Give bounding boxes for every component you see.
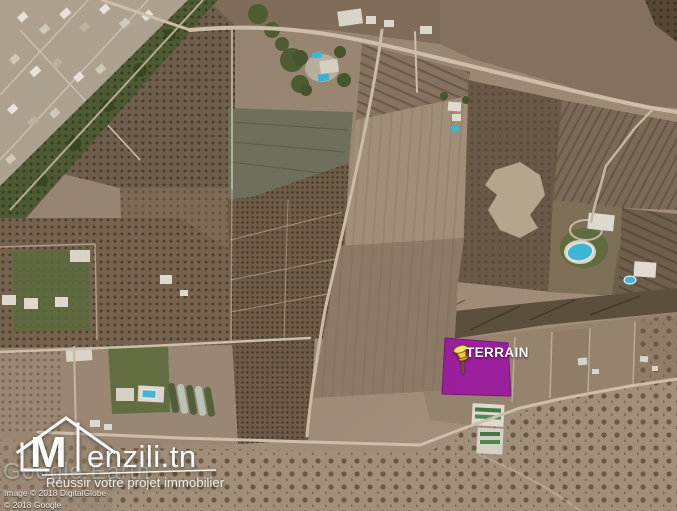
imagery-credit: Image © 2018 DigitalGlobe bbox=[4, 488, 106, 498]
logo-monogram: M bbox=[30, 428, 67, 477]
copyright-google: © 2018 Google bbox=[4, 500, 61, 510]
left-orchard-villas bbox=[0, 218, 232, 348]
logo-wordmark: enzili.tn bbox=[87, 439, 197, 474]
menzili-logo: M enzili.tn Réussir votre projet immobil… bbox=[14, 412, 232, 492]
terrain-label: TERRAIN bbox=[466, 345, 529, 360]
map-canvas[interactable]: TERRAIN Google Earth M enzili.tn Réussir… bbox=[0, 0, 677, 511]
